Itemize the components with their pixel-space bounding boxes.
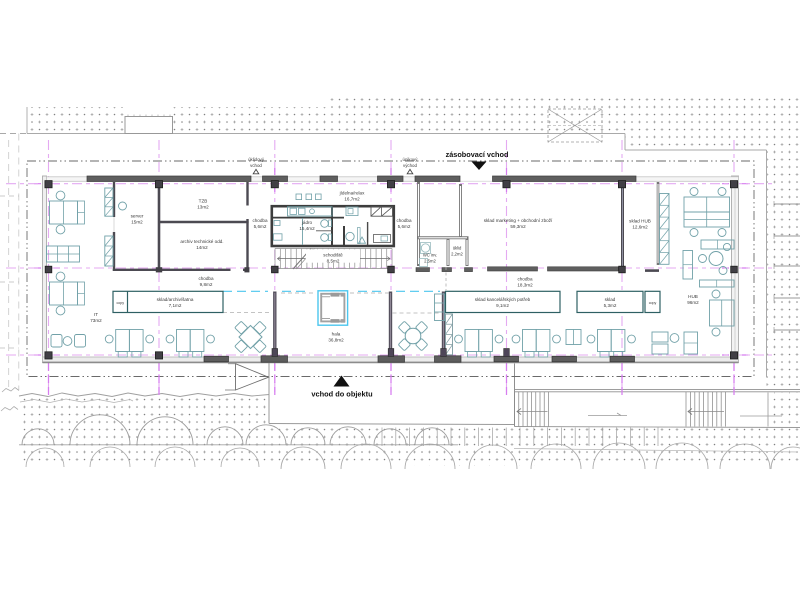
- svg-text:vchod: vchod: [250, 163, 262, 168]
- svg-text:WC inv.: WC inv.: [423, 253, 437, 258]
- svg-text:sklad: sklad: [605, 297, 616, 302]
- svg-text:zásobovací vchod: zásobovací vchod: [446, 150, 509, 159]
- svg-text:sklad HUB: sklad HUB: [629, 219, 651, 224]
- svg-text:HUB: HUB: [688, 294, 698, 299]
- svg-text:vchod do objektu: vchod do objektu: [311, 390, 373, 399]
- svg-text:copy: copy: [649, 301, 657, 305]
- svg-text:úklid: úklid: [453, 246, 462, 251]
- svg-text:sklad kancelářských potřeb: sklad kancelářských potřeb: [475, 297, 531, 302]
- svg-text:úklidový: úklidový: [248, 157, 265, 162]
- svg-text:5,6m2: 5,6m2: [254, 224, 267, 229]
- svg-text:server: server: [131, 214, 144, 219]
- svg-text:12,6m2: 12,6m2: [632, 225, 648, 230]
- svg-text:9,1m2: 9,1m2: [496, 303, 509, 308]
- svg-text:13m2: 13m2: [197, 205, 209, 210]
- svg-text:sklad/archiv/šatna: sklad/archiv/šatna: [157, 297, 194, 302]
- svg-text:36,8m2: 36,8m2: [328, 338, 344, 343]
- svg-text:jídelna/relax: jídelna/relax: [339, 191, 365, 196]
- svg-text:chodba: chodba: [517, 277, 533, 282]
- svg-text:hala: hala: [332, 332, 341, 337]
- svg-text:15,4m2: 15,4m2: [299, 226, 315, 231]
- svg-text:chodba: chodba: [252, 218, 268, 223]
- svg-text:16,7m2: 16,7m2: [344, 197, 360, 202]
- svg-text:IT: IT: [94, 312, 98, 317]
- svg-text:15m2: 15m2: [131, 220, 143, 225]
- svg-text:schodiště: schodiště: [323, 253, 343, 258]
- svg-text:73m2: 73m2: [90, 318, 102, 323]
- svg-text:14m2: 14m2: [196, 245, 208, 250]
- svg-text:východ: východ: [403, 163, 417, 168]
- svg-text:chodba: chodba: [396, 218, 412, 223]
- svg-text:archiv technické odd.: archiv technické odd.: [180, 239, 223, 244]
- svg-text:8,5m2: 8,5m2: [327, 259, 340, 264]
- svg-text:únikový: únikový: [403, 157, 419, 162]
- svg-text:9,8m2: 9,8m2: [200, 282, 213, 287]
- svg-text:5,3m2: 5,3m2: [604, 303, 617, 308]
- svg-text:2,5m2: 2,5m2: [424, 259, 436, 264]
- svg-text:5,6m2: 5,6m2: [398, 224, 411, 229]
- svg-text:96m2: 96m2: [687, 300, 699, 305]
- svg-text:7,1m2: 7,1m2: [169, 303, 182, 308]
- svg-text:copy: copy: [117, 301, 125, 305]
- svg-text:18,3m2: 18,3m2: [517, 283, 533, 288]
- svg-text:jádro: jádro: [301, 220, 313, 225]
- svg-text:59,3m2: 59,3m2: [510, 224, 526, 229]
- svg-text:chodba: chodba: [198, 276, 214, 281]
- svg-text:sklad marketing + obchodní zbo: sklad marketing + obchodní zboží: [484, 218, 553, 223]
- svg-text:TZB: TZB: [199, 199, 208, 204]
- svg-text:2,2m2: 2,2m2: [451, 252, 463, 257]
